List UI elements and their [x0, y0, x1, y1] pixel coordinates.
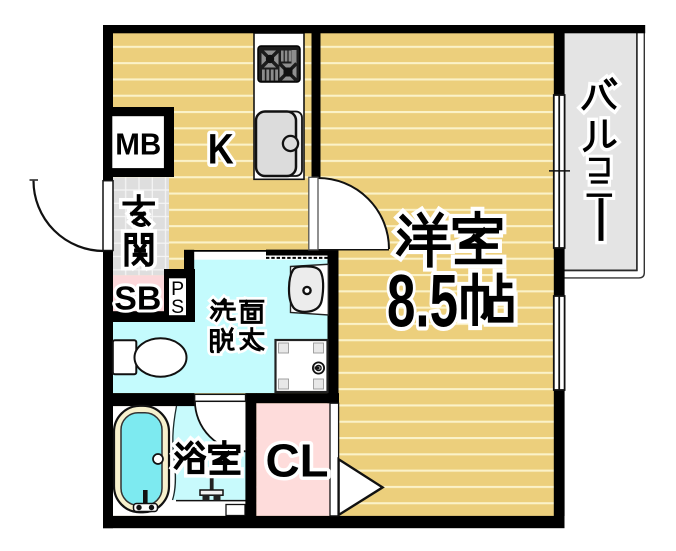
svg-text:MB: MB — [115, 127, 161, 162]
svg-text:K: K — [208, 126, 234, 174]
svg-text:8.5: 8.5 — [387, 260, 458, 343]
svg-text:SB: SB — [114, 279, 161, 316]
svg-text:S: S — [171, 296, 184, 318]
svg-text:CL: CL — [266, 435, 329, 487]
